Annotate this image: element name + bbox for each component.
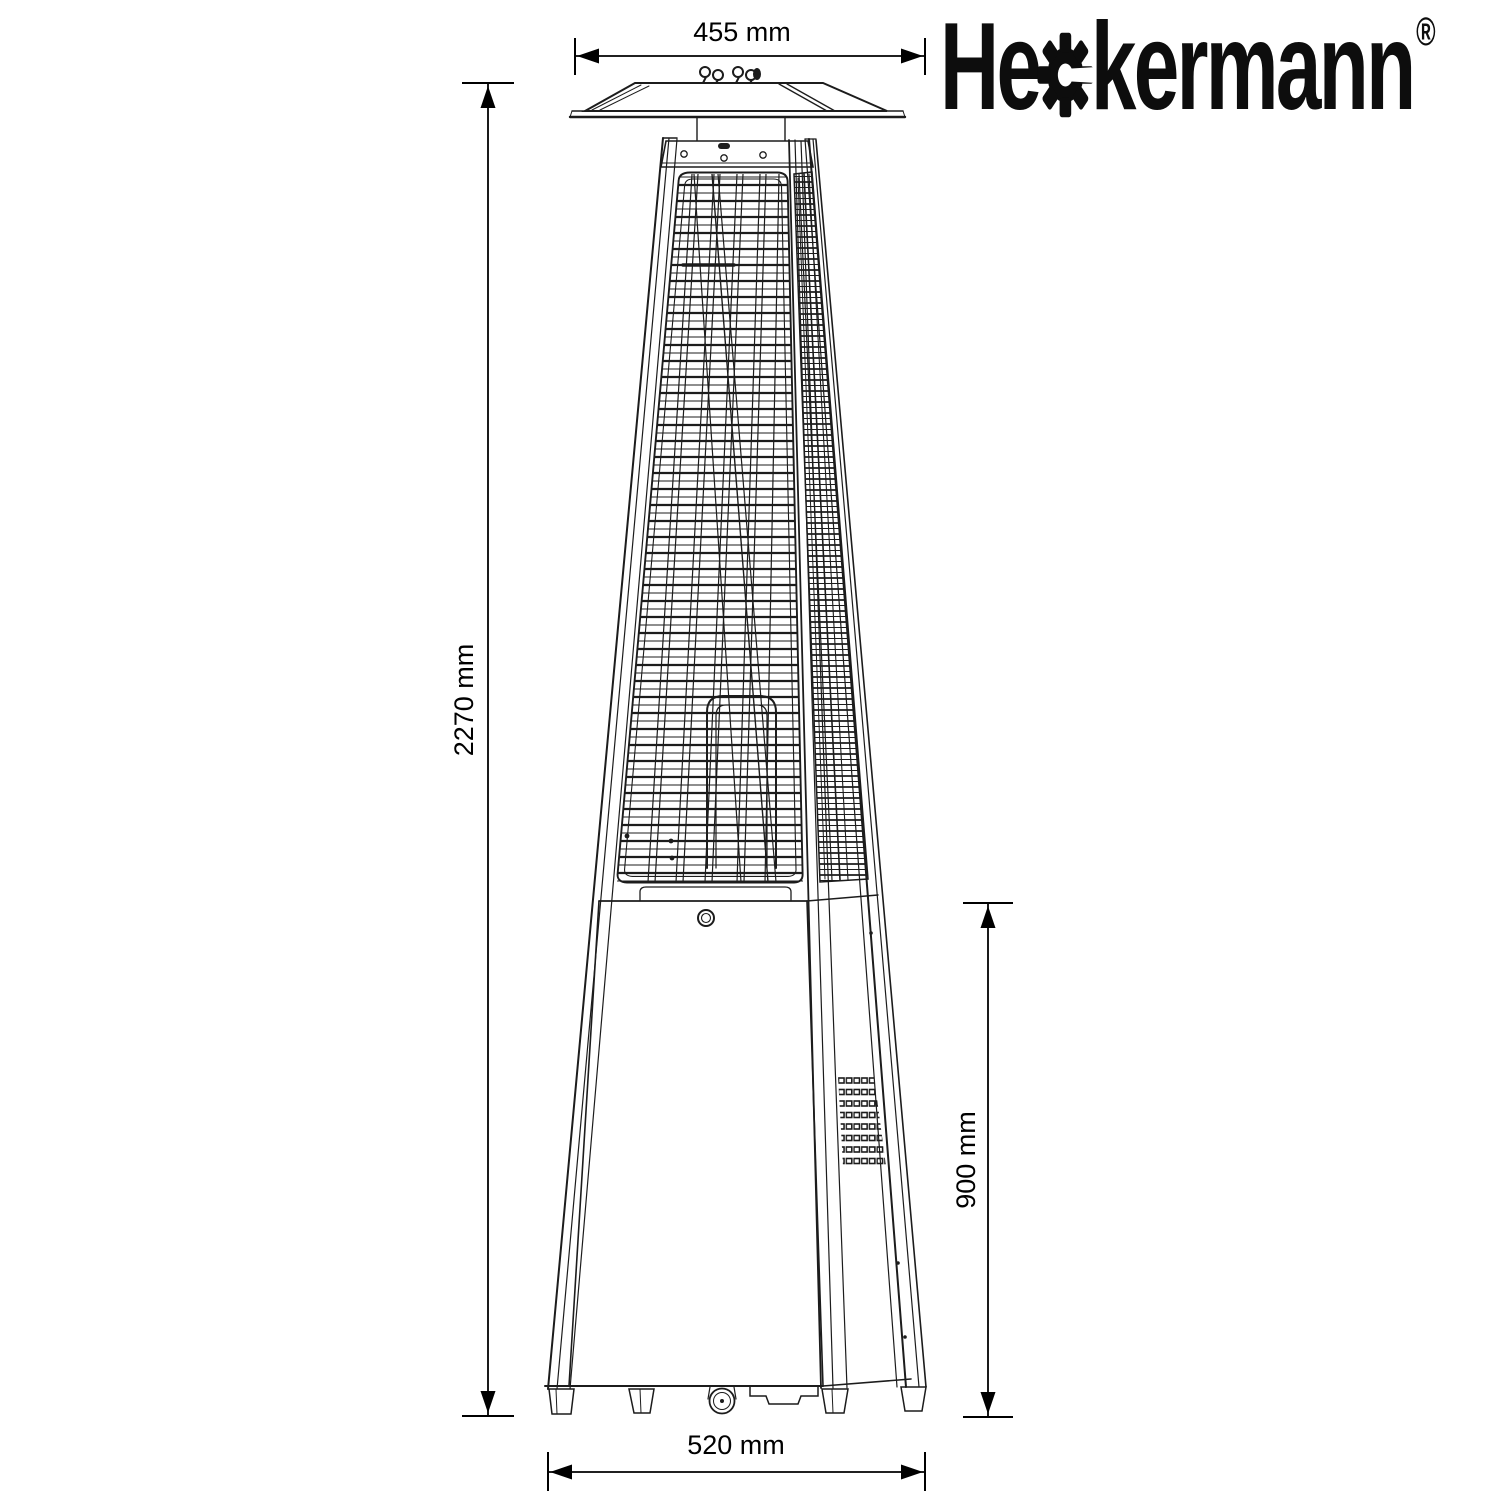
hood-support-columns <box>697 117 785 141</box>
patio-heater-technical-drawing <box>0 0 1500 1500</box>
registered-trademark: ® <box>1416 11 1435 53</box>
technical-drawing-page: 455 mm 2270 mm 900 mm 520 mm He <box>0 0 1500 1500</box>
brand-logo: He kermann® <box>940 2 1436 142</box>
vent-grid <box>838 1076 886 1166</box>
base-housing <box>545 895 911 1386</box>
brand-logo-text-right: kermann <box>1091 0 1414 136</box>
dimension-label-base-width: 520 mm <box>586 1428 886 1462</box>
dimension-label-reflector-width: 455 mm <box>592 15 892 49</box>
dimension-label-lower-section-height: 900 mm <box>948 1050 984 1270</box>
front-mesh-guard <box>617 173 803 883</box>
brand-logo-text-left: He <box>940 0 1039 136</box>
dimension-label-total-height: 2270 mm <box>446 590 482 810</box>
gear-icon <box>1036 12 1094 142</box>
hanging-loops <box>700 67 761 83</box>
feet-and-wheel <box>549 1387 926 1414</box>
burner-tray <box>640 887 791 901</box>
reflector-hood <box>570 83 905 117</box>
